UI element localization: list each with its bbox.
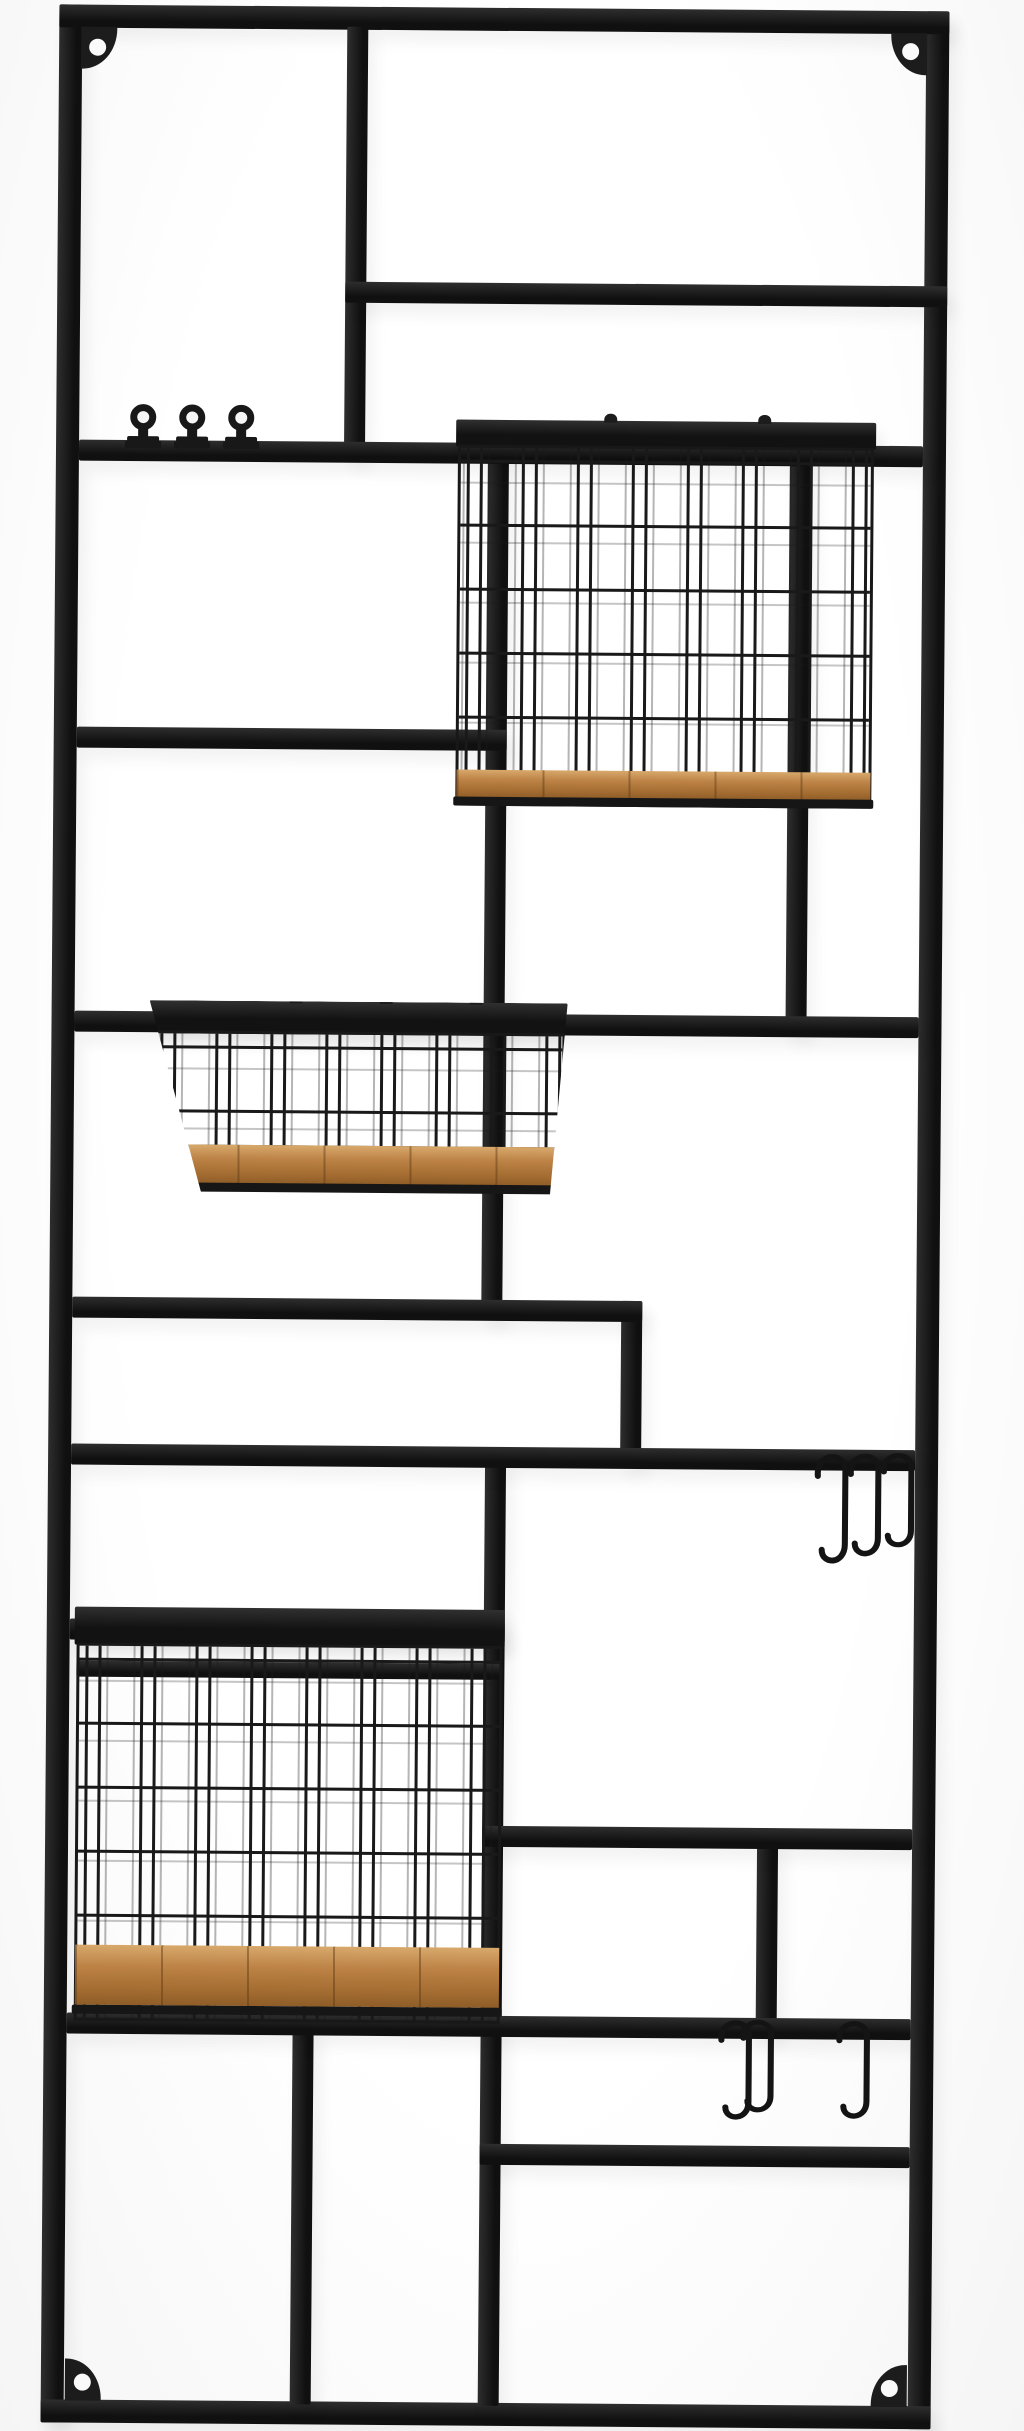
screw-hole-icon [881, 2380, 898, 2397]
frame-top-bar [59, 4, 949, 34]
shelf-bar-hook-row-upper [71, 1444, 915, 1472]
wire-basket-top-right [453, 420, 876, 809]
knob-head [228, 405, 254, 431]
s-hook-groups [10, 0, 1024, 4]
divider-vertical-lower-right [756, 1837, 779, 2035]
shelf-bar-left-short [77, 727, 507, 751]
screw-hole-icon [74, 2374, 91, 2391]
basket-wire-mesh [455, 445, 874, 809]
product-photo: Tall black metal wall-mounted grid organ… [0, 0, 1024, 2431]
knob-head [179, 404, 205, 430]
knob-base [225, 437, 257, 448]
s-hook [873, 1443, 918, 1559]
divider-vertical-short [620, 1301, 642, 1464]
screw-hole-icon [902, 43, 919, 60]
divider-vertical-bottom-left [290, 2024, 314, 2404]
wire-basket-middle-left [148, 1000, 568, 1200]
shelf-bar-mid-left [72, 1297, 642, 1322]
knob-base [176, 436, 208, 447]
knob-head [130, 404, 156, 430]
shelf-bar-right-lower [482, 1826, 912, 1850]
shelf-bar-bottom-right [480, 2144, 910, 2168]
wall-knob-row [10, 0, 1024, 4]
basket-bottom-wire [453, 797, 873, 809]
wire-basket-bottom-left [72, 1607, 505, 2022]
wall-knob [224, 405, 258, 449]
knob-base [127, 436, 159, 447]
wall-knob [175, 404, 209, 448]
screw-hole-icon [89, 39, 106, 56]
basket-hanger-hook [604, 414, 617, 423]
shelf-bar-top-right [345, 282, 947, 308]
basket-bottom-wire [148, 1182, 566, 1194]
wall-knob [126, 404, 160, 448]
mounting-hole-top-right [891, 33, 927, 75]
frame-left-bar [41, 4, 83, 2422]
s-hook [733, 2010, 778, 2124]
frame-right-bar [907, 11, 949, 2429]
basket-rail [75, 1607, 505, 1648]
basket-wire-mesh [151, 1030, 566, 1150]
mounting-hole-top-left [81, 27, 117, 69]
mounting-hole-bottom-left [65, 2359, 101, 2401]
mounting-hole-bottom-right [871, 2365, 907, 2407]
basket-hanger-hook [758, 415, 771, 424]
s-hook [829, 2011, 874, 2131]
basket-hanger-hook [290, 994, 303, 1003]
divider-vertical-top [344, 27, 368, 457]
basket-hanger-hook [380, 995, 393, 1004]
wall-organizer-rack [0, 0, 1024, 2431]
basket-wood-base [151, 1144, 563, 1186]
basket-wood-base [75, 1945, 499, 2008]
image-caption: Tall black metal wall-mounted grid organ… [0, 0, 1, 1]
basket-hanger-hook [470, 996, 483, 1005]
